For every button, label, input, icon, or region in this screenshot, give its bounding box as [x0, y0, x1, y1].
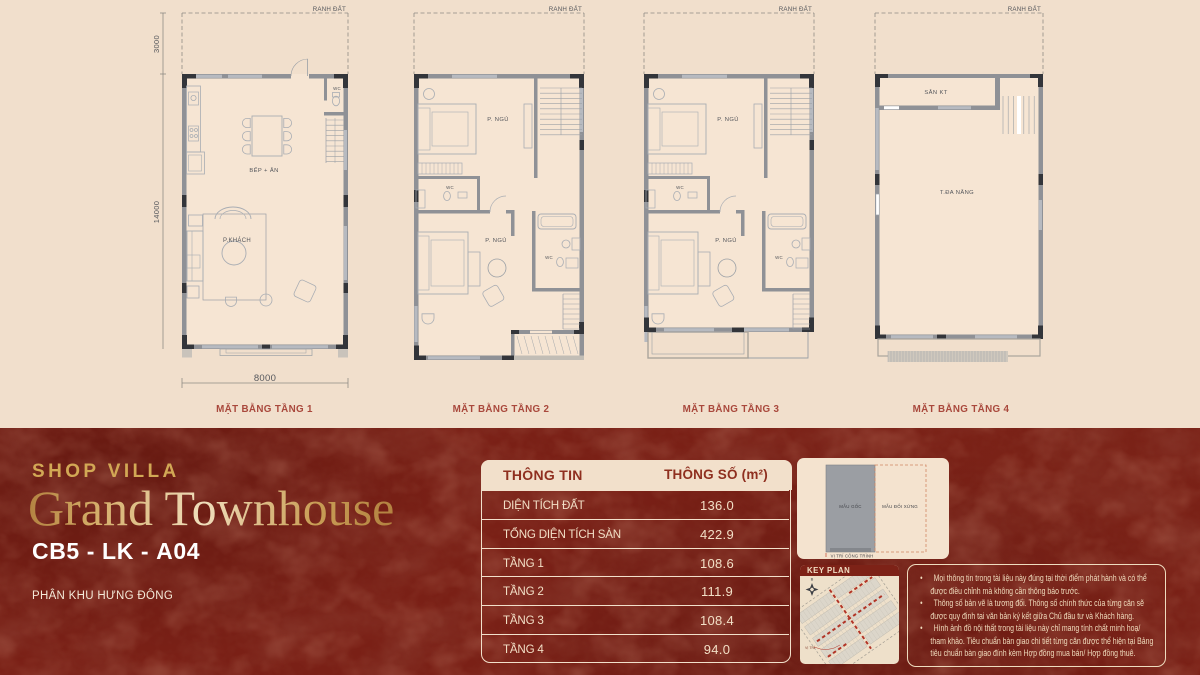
- svg-text:MẶT BẰNG TẦNG 4: MẶT BẰNG TẦNG 4: [913, 404, 1010, 415]
- svg-text:P. NGỦ: P. NGỦ: [717, 116, 739, 123]
- svg-text:RANH ĐẤT: RANH ĐẤT: [313, 6, 346, 13]
- svg-text:B: B: [811, 577, 814, 582]
- svg-text:VỊ TRÍ CÔNG TRÌNH: VỊ TRÍ CÔNG TRÌNH: [831, 554, 874, 559]
- svg-text:14000: 14000: [152, 201, 161, 223]
- svg-text:SÂN KT: SÂN KT: [924, 89, 947, 96]
- svg-text:P. NGỦ: P. NGỦ: [485, 237, 507, 244]
- svg-text:P. NGỦ: P. NGỦ: [715, 237, 737, 244]
- svg-text:RANH ĐẤT: RANH ĐẤT: [549, 6, 582, 13]
- svg-text:MẶT BẰNG TẦNG 1: MẶT BẰNG TẦNG 1: [216, 404, 313, 415]
- svg-text:P.KHÁCH: P.KHÁCH: [223, 237, 251, 244]
- svg-text:T.ĐA NĂNG: T.ĐA NĂNG: [940, 189, 974, 196]
- svg-text:WC: WC: [333, 86, 341, 91]
- svg-text:MẶT BẰNG TẦNG 2: MẶT BẰNG TẦNG 2: [453, 404, 550, 415]
- svg-text:WC: WC: [775, 255, 783, 260]
- svg-text:RANH ĐẤT: RANH ĐẤT: [779, 6, 812, 13]
- svg-text:MẪU GỐC: MẪU GỐC: [839, 504, 861, 509]
- svg-text:8000: 8000: [254, 373, 276, 384]
- svg-text:WC: WC: [446, 185, 454, 190]
- svg-text:3000: 3000: [152, 35, 161, 53]
- svg-text:P. NGỦ: P. NGỦ: [487, 116, 509, 123]
- svg-text:WC: WC: [676, 185, 684, 190]
- svg-text:MẪU ĐỐI XỨNG: MẪU ĐỐI XỨNG: [882, 504, 918, 509]
- svg-text:BẾP + ĂN: BẾP + ĂN: [249, 167, 278, 174]
- svg-text:MẶT BẰNG TẦNG 3: MẶT BẰNG TẦNG 3: [683, 404, 780, 415]
- svg-text:RANH ĐẤT: RANH ĐẤT: [1008, 6, 1041, 13]
- svg-text:WC: WC: [545, 255, 553, 260]
- svg-text:VỊ TRÍ: VỊ TRÍ: [805, 646, 815, 650]
